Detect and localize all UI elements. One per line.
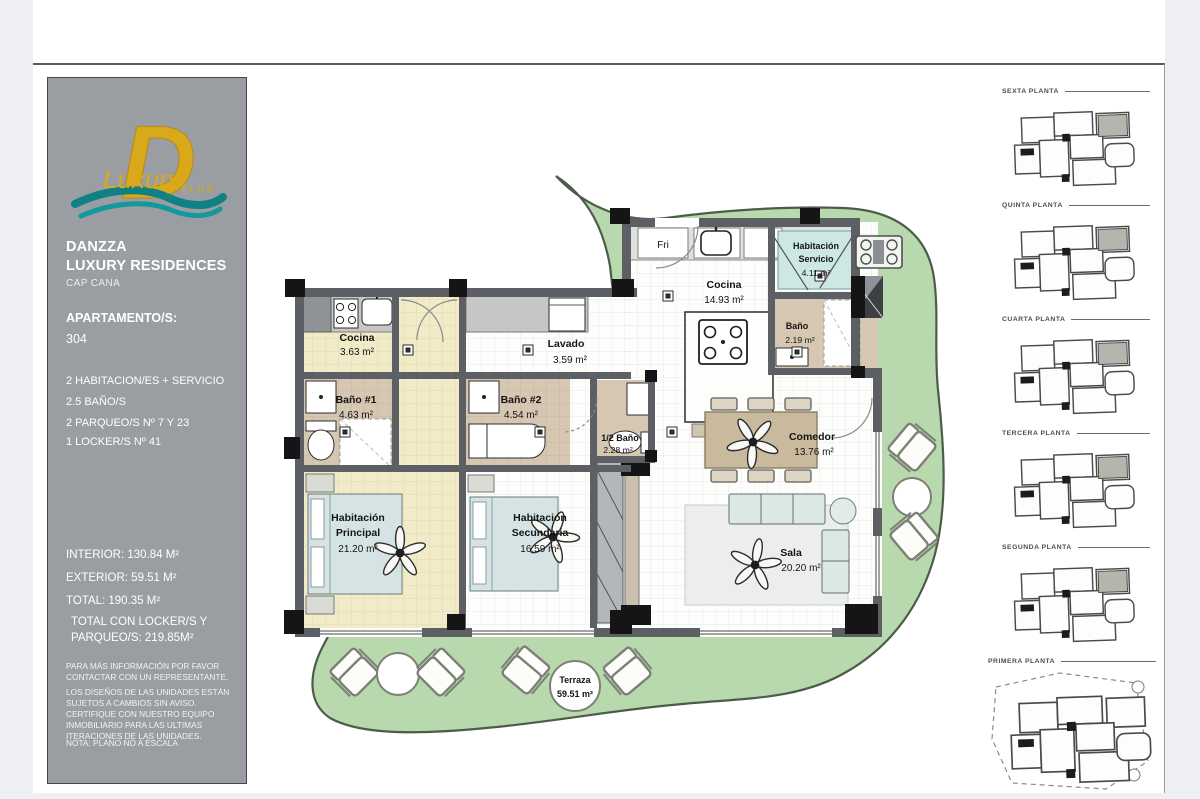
terrace-table-icon xyxy=(550,661,600,711)
info-sidebar: D Luxury PLUS DANZZA LUXURY RESIDENCES C… xyxy=(47,77,247,784)
room-area: 4.54 m² xyxy=(504,410,539,421)
disclaimer-changes: LOS DISEÑOS DE LAS UNIDADES ESTÁN SUJETO… xyxy=(66,687,234,742)
fridge-label: Fri xyxy=(657,240,669,251)
pillow-icon xyxy=(473,547,486,584)
landscape-circle xyxy=(1132,681,1144,693)
floor-plan: Cocina 3.63 m² Lavado 3.59 m² Baño #1 4.… xyxy=(260,175,980,750)
brand-line1: DANZZA xyxy=(66,238,234,257)
room-area: 20.20 m² xyxy=(781,563,821,574)
room-area: 4.11 m² xyxy=(802,268,831,278)
mini-floor-cuarta: CUARTA PLANTA xyxy=(1002,316,1150,421)
room-area: 13.76 m² xyxy=(794,447,834,458)
room-label: Sala xyxy=(780,547,802,559)
room-label: Baño #2 xyxy=(501,394,542,406)
room-area: 14.93 m² xyxy=(704,295,744,306)
pillow-icon xyxy=(311,499,324,539)
brand-line2: LUXURY RESIDENCES xyxy=(66,257,234,276)
side-table-icon xyxy=(830,498,856,524)
danzza-logo: D Luxury PLUS xyxy=(63,96,233,231)
room-label: Cocina xyxy=(706,279,741,291)
highlighted-unit xyxy=(1098,456,1128,478)
room-label: Secundaria xyxy=(512,527,569,539)
area-summary: INTERIOR: 130.84 M² EXTERIOR: 59.51 M² T… xyxy=(66,544,234,613)
room-label: Lavado xyxy=(548,338,585,350)
scale-note: NOTA: PLANO NO A ESCALA xyxy=(66,738,234,748)
room-label: Servicio xyxy=(798,254,834,264)
floor-label: PRIMERA PLANTA xyxy=(988,658,1055,665)
room-label: Cocina xyxy=(339,332,374,344)
sliding-door xyxy=(625,472,639,618)
floor-rule xyxy=(1071,319,1150,320)
floor-label: SEGUNDA PLANTA xyxy=(1002,544,1072,551)
mini-floor-segunda: SEGUNDA PLANTA xyxy=(1002,544,1150,649)
chair-icon xyxy=(748,398,774,410)
room-label: Habitación xyxy=(331,512,385,524)
chair-icon xyxy=(748,470,774,482)
floor-rule xyxy=(1069,205,1150,206)
room-area: 3.59 m² xyxy=(553,355,588,366)
mini-floor-plan xyxy=(1002,439,1150,535)
chair-icon xyxy=(785,398,811,410)
room-label: Baño #1 xyxy=(336,394,377,406)
closet xyxy=(597,460,623,623)
mini-floor-quinta: QUINTA PLANTA xyxy=(1002,202,1150,307)
room-area: 16.59 m² xyxy=(520,544,560,555)
apartment-number: 304 xyxy=(66,332,234,346)
area-interior: INTERIOR: 130.84 M² xyxy=(66,544,234,567)
chair-icon xyxy=(785,470,811,482)
chair-icon xyxy=(711,398,737,410)
total-with-locker-line2: PARQUEO/S: 219.85M² xyxy=(66,632,234,644)
sink-icon xyxy=(701,231,731,255)
sink-icon xyxy=(362,299,392,325)
chair-icon xyxy=(711,470,737,482)
floor-rule xyxy=(1078,547,1150,548)
unit-features: 2 HABITACION/ES + SERVICIO 2.5 BAÑO/S 2 … xyxy=(66,371,234,434)
disclaimer-contact: PARA MÁS INFORMACIÓN POR FAVOR CONTACTAR… xyxy=(66,661,234,683)
mini-floor-primera: PRIMERA PLANTA xyxy=(988,658,1156,795)
room-area: 59.51 m² xyxy=(557,689,593,699)
brand-name: DANZZA LUXURY RESIDENCES xyxy=(66,238,234,276)
floor-label: TERCERA PLANTA xyxy=(1002,430,1071,437)
stove-icon xyxy=(334,299,358,328)
danzza-logo-icon: D Luxury PLUS xyxy=(63,96,233,231)
sofa-icon xyxy=(729,494,825,524)
mini-floor-sexta: SEXTA PLANTA xyxy=(1002,88,1150,193)
room-area: 3.63 m² xyxy=(340,347,375,358)
mini-floor-tercera: TERCERA PLANTA xyxy=(1002,430,1150,535)
logo-plus: PLUS xyxy=(181,184,215,195)
mini-floor-plan xyxy=(1002,97,1150,193)
highlighted-unit xyxy=(1098,228,1128,250)
fridge-icon xyxy=(303,296,331,332)
mini-floor-plan xyxy=(1002,325,1150,421)
nightstand-icon xyxy=(306,596,334,614)
sink-icon xyxy=(627,383,649,415)
feature-item: 2 HABITACION/ES + SERVICIO xyxy=(66,371,234,392)
floor-rule xyxy=(1077,433,1150,434)
feature-item: 2 PARQUEO/S Nº 7 Y 23 xyxy=(66,413,234,434)
room-label: Habitación xyxy=(793,241,839,251)
floor-rule xyxy=(1061,661,1156,662)
pillow-icon xyxy=(311,547,324,587)
room-area: 2.28 m² xyxy=(603,445,633,455)
room-label: Terraza xyxy=(559,675,591,685)
room-label: 1/2 Baño xyxy=(601,433,639,443)
room-label: Comedor xyxy=(789,431,835,443)
highlighted-unit xyxy=(1098,342,1128,364)
floor-label: CUARTA PLANTA xyxy=(1002,316,1065,323)
pillow-icon xyxy=(473,502,486,539)
room-label: Baño xyxy=(786,321,809,331)
brand-location: CAP CANA xyxy=(66,278,234,289)
highlighted-unit xyxy=(1098,570,1128,592)
bbq-grill-icon xyxy=(856,236,902,268)
locker-info: 1 LOCKER/S Nº 41 xyxy=(66,436,234,448)
apartment-label: APARTAMENTO/S: xyxy=(66,311,234,325)
nightstand-icon xyxy=(306,474,334,492)
floor-rule xyxy=(1065,91,1150,92)
logo-script: Luxury xyxy=(103,164,183,194)
room-label: Habitación xyxy=(513,512,567,524)
floor-label: QUINTA PLANTA xyxy=(1002,202,1063,209)
nightstand-icon xyxy=(468,475,494,492)
document-margin-top xyxy=(33,0,1165,63)
room-area: 4.63 m² xyxy=(339,410,374,421)
feature-item: 2.5 BAÑO/S xyxy=(66,392,234,413)
mini-floor-plan xyxy=(1002,553,1150,649)
terrace-table-icon xyxy=(893,478,931,516)
washer-icon xyxy=(549,298,585,331)
area-exterior: EXTERIOR: 59.51 M² xyxy=(66,567,234,590)
mini-floor-plan xyxy=(1002,211,1150,307)
room-area: 21.20 m² xyxy=(338,544,378,555)
toilet-icon xyxy=(308,430,334,460)
room-area: 2.19 m² xyxy=(785,335,815,345)
highlighted-unit xyxy=(1098,114,1128,136)
total-with-locker-line1: TOTAL CON LOCKER/S Y xyxy=(66,616,234,628)
brochure-page: D Luxury PLUS DANZZA LUXURY RESIDENCES C… xyxy=(0,0,1200,799)
floor-label: SEXTA PLANTA xyxy=(1002,88,1059,95)
terrace-table-icon xyxy=(377,653,419,695)
area-total: TOTAL: 190.35 M² xyxy=(66,590,234,613)
room-label: Principal xyxy=(336,527,380,539)
mini-floor-plan xyxy=(988,667,1156,795)
